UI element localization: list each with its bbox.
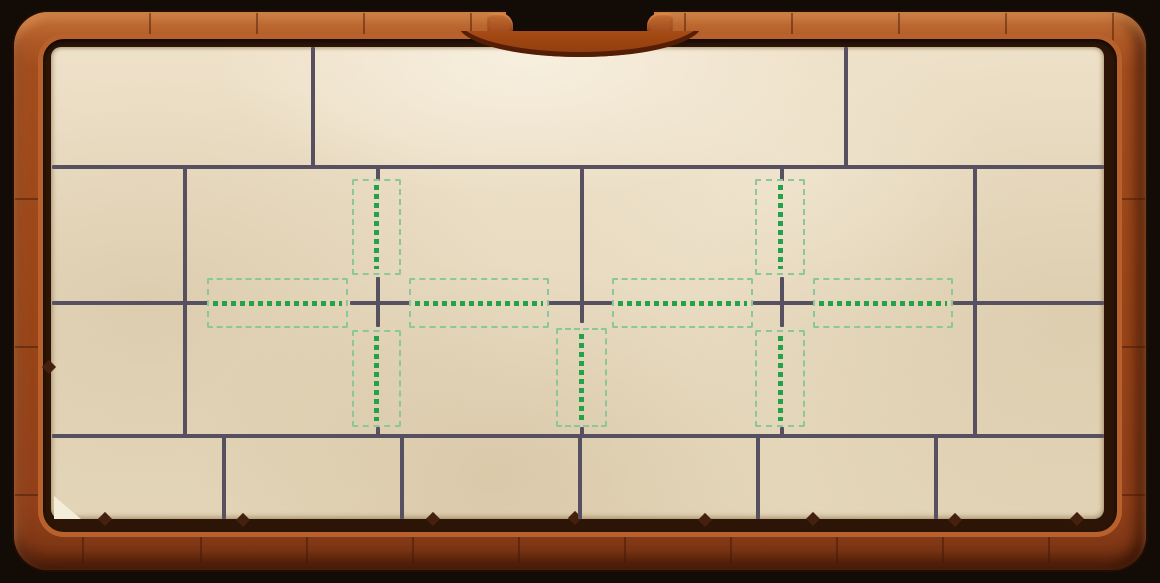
hint-dotline [778,185,783,269]
wall-segment-vertical [973,167,977,438]
cross2-top-slot[interactable] [755,179,805,275]
game-stage [0,0,1160,583]
cross1-left-slot[interactable] [207,278,348,328]
hint-dotline [778,336,783,421]
wall-segment-vertical [400,436,404,519]
cross1-top-slot[interactable] [352,179,401,275]
wall-segment-vertical [222,436,226,519]
wall-segment-vertical [844,47,848,169]
cross2-left-slot[interactable] [612,278,753,328]
cross1-bottom-slot[interactable] [352,330,401,427]
puzzle-board-layer [0,0,1160,583]
cross2-right-slot[interactable] [813,278,953,328]
cross1-right-slot[interactable] [409,278,549,328]
wall-segment-vertical [780,277,784,327]
wall-segment-horizontal [52,165,1104,169]
wall-segment-vertical [376,427,380,438]
wall-segment-vertical [183,167,187,438]
hint-dotline [415,301,543,306]
wall-segment-vertical [756,436,760,519]
frame-notch [506,0,654,34]
wall-segment-vertical [780,427,784,438]
hint-dotline [213,301,342,306]
hint-dotline [819,301,947,306]
wall-segment-vertical [934,436,938,519]
hint-dotline [618,301,747,306]
middle-bottom-slot[interactable] [556,328,607,427]
notch-crescent-wood [458,31,702,57]
hint-dotline [374,185,379,269]
wall-segment-vertical [580,167,584,323]
wall-segment-horizontal [753,301,815,305]
wall-segment-horizontal [350,301,410,305]
notch-crescent [456,31,704,57]
wall-segment-vertical [578,436,582,519]
wall-segment-vertical [311,47,315,169]
hint-dotline [579,334,584,421]
wall-segment-vertical [376,277,380,327]
hint-dotline [374,336,379,421]
cross2-bottom-slot[interactable] [755,330,805,427]
